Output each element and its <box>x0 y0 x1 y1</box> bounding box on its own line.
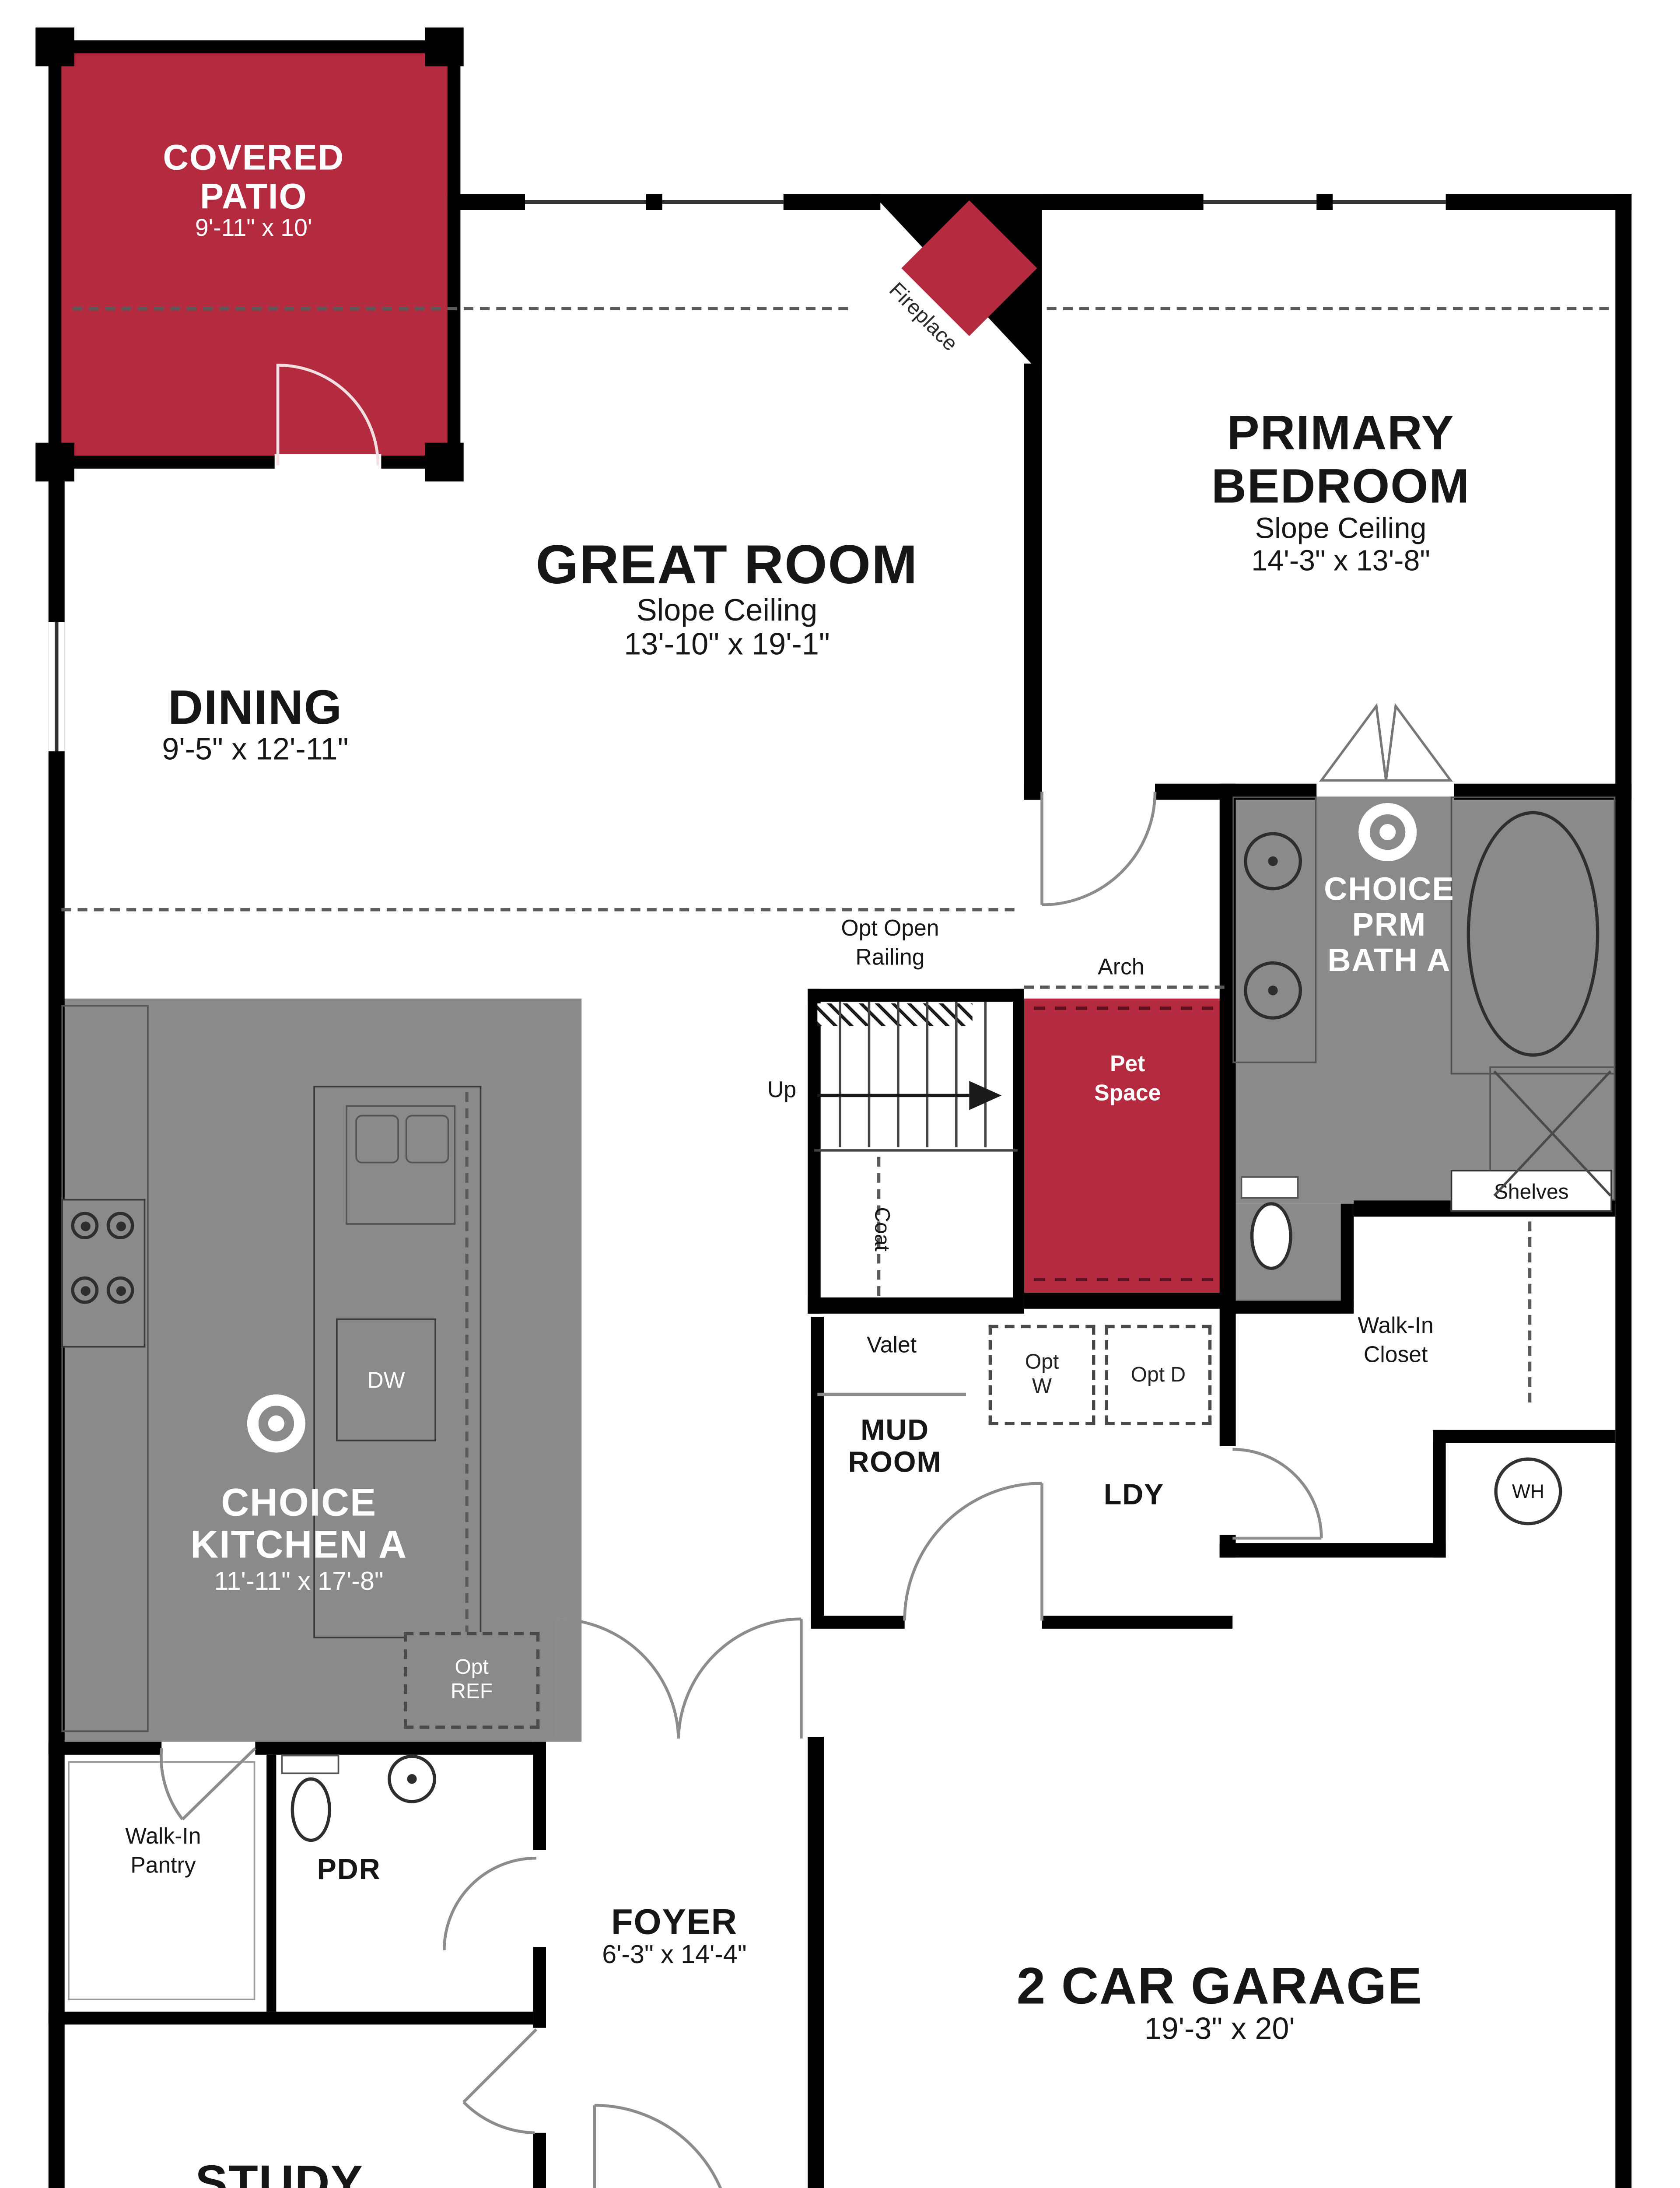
laundry-label: LDY <box>1069 1480 1198 1512</box>
coat-text: Coat <box>870 1207 894 1251</box>
room-title: 2 CAR GARAGE <box>937 1958 1502 2015</box>
room-dims: 14'-3" x 13'-8" <box>1115 546 1567 578</box>
powder-label: PDR <box>294 1855 404 1887</box>
study-label: STUDY 11'-8" x 10'-9" <box>77 2157 481 2188</box>
room-title: PRIMARY BEDROOM <box>1115 407 1567 514</box>
room-title: PDR <box>294 1855 404 1887</box>
walk-in-pantry-label: Walk-In Pantry <box>100 1823 226 1879</box>
room-title: Walk-In Pantry <box>125 1823 201 1877</box>
floor-plan: DW Opt REF Shelves WH Opt W Opt D <box>0 0 1680 2188</box>
room-title: COVERED PATIO <box>149 139 359 217</box>
railing-text: Opt Open Railing <box>841 915 939 969</box>
garage-label: 2 CAR GARAGE 19'-3" x 20' <box>937 1958 1502 2049</box>
walk-in-closet-label: Walk-In Closet <box>1334 1312 1457 1369</box>
kitchen-label: CHOICE KITCHEN A 11'-11" x 17'-8" <box>129 1483 468 1597</box>
covered-patio-label: COVERED PATIO 9'-11" x 10' <box>149 139 359 244</box>
room-dims: 11'-11" x 17'-8" <box>129 1568 468 1597</box>
shower-x <box>1494 1071 1610 1196</box>
up-text: Up <box>767 1076 796 1102</box>
valet-label: Valet <box>821 1331 963 1360</box>
mud-room-label: MUD ROOM <box>830 1415 959 1479</box>
room-dims: 6'-3" x 14'-4" <box>557 1943 791 1971</box>
plan-linework <box>0 0 1680 2188</box>
room-title: CHOICE PRM BATH A <box>1309 873 1470 979</box>
room-title: STUDY <box>77 2157 481 2188</box>
room-title: LDY <box>1069 1480 1198 1512</box>
room-title: GREAT ROOM <box>485 536 969 597</box>
room-dims: 9'-11" x 10' <box>149 217 359 244</box>
great-room-label: GREAT ROOM Slope Ceiling 13'-10" x 19'-1… <box>485 536 969 664</box>
room-title: Pet Space <box>1094 1050 1161 1105</box>
up-label: Up <box>756 1076 808 1105</box>
opt-open-railing-label: Opt Open Railing <box>827 915 953 971</box>
valet-text: Valet <box>867 1331 917 1357</box>
room-title: DINING <box>77 682 433 735</box>
room-title: Walk-In Closet <box>1358 1312 1433 1366</box>
stair-treads <box>814 1002 1018 1150</box>
prm-bath-label: CHOICE PRM BATH A <box>1309 873 1470 979</box>
pet-space-dash <box>1034 1008 1221 1280</box>
primary-bedroom-label: PRIMARY BEDROOM Slope Ceiling 14'-3" x 1… <box>1115 407 1567 578</box>
pet-space-label: Pet Space <box>1082 1050 1173 1107</box>
room-note: Slope Ceiling <box>485 597 969 631</box>
room-dims: 13'-10" x 19'-1" <box>485 631 969 664</box>
room-dims: 19'-3" x 20' <box>937 2015 1502 2049</box>
room-dims: 9'-5" x 12'-11" <box>77 735 433 769</box>
coat-label: Coat <box>868 1168 896 1291</box>
bath-double-doors <box>1321 706 1450 781</box>
arch-text: Arch <box>1098 953 1144 979</box>
room-title: CHOICE KITCHEN A <box>129 1483 468 1569</box>
foyer-label: FOYER 6'-3" x 14'-4" <box>557 1904 791 1971</box>
room-title: MUD ROOM <box>830 1415 959 1479</box>
dining-label: DINING 9'-5" x 12'-11" <box>77 682 433 769</box>
up-arrow <box>817 1081 1001 1110</box>
room-title: FOYER <box>557 1904 791 1943</box>
arch-label: Arch <box>1073 953 1170 982</box>
room-note: Slope Ceiling <box>1115 514 1567 546</box>
